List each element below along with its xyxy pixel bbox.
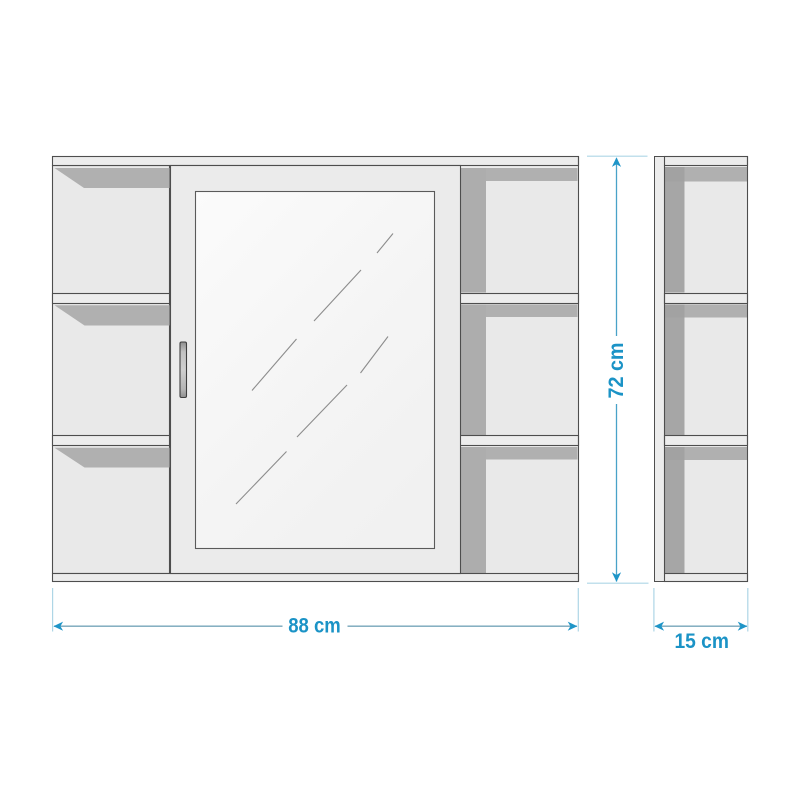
svg-text:15 cm: 15 cm [674, 629, 729, 653]
svg-text:88 cm: 88 cm [288, 614, 341, 638]
svg-text:72 cm: 72 cm [604, 343, 628, 399]
